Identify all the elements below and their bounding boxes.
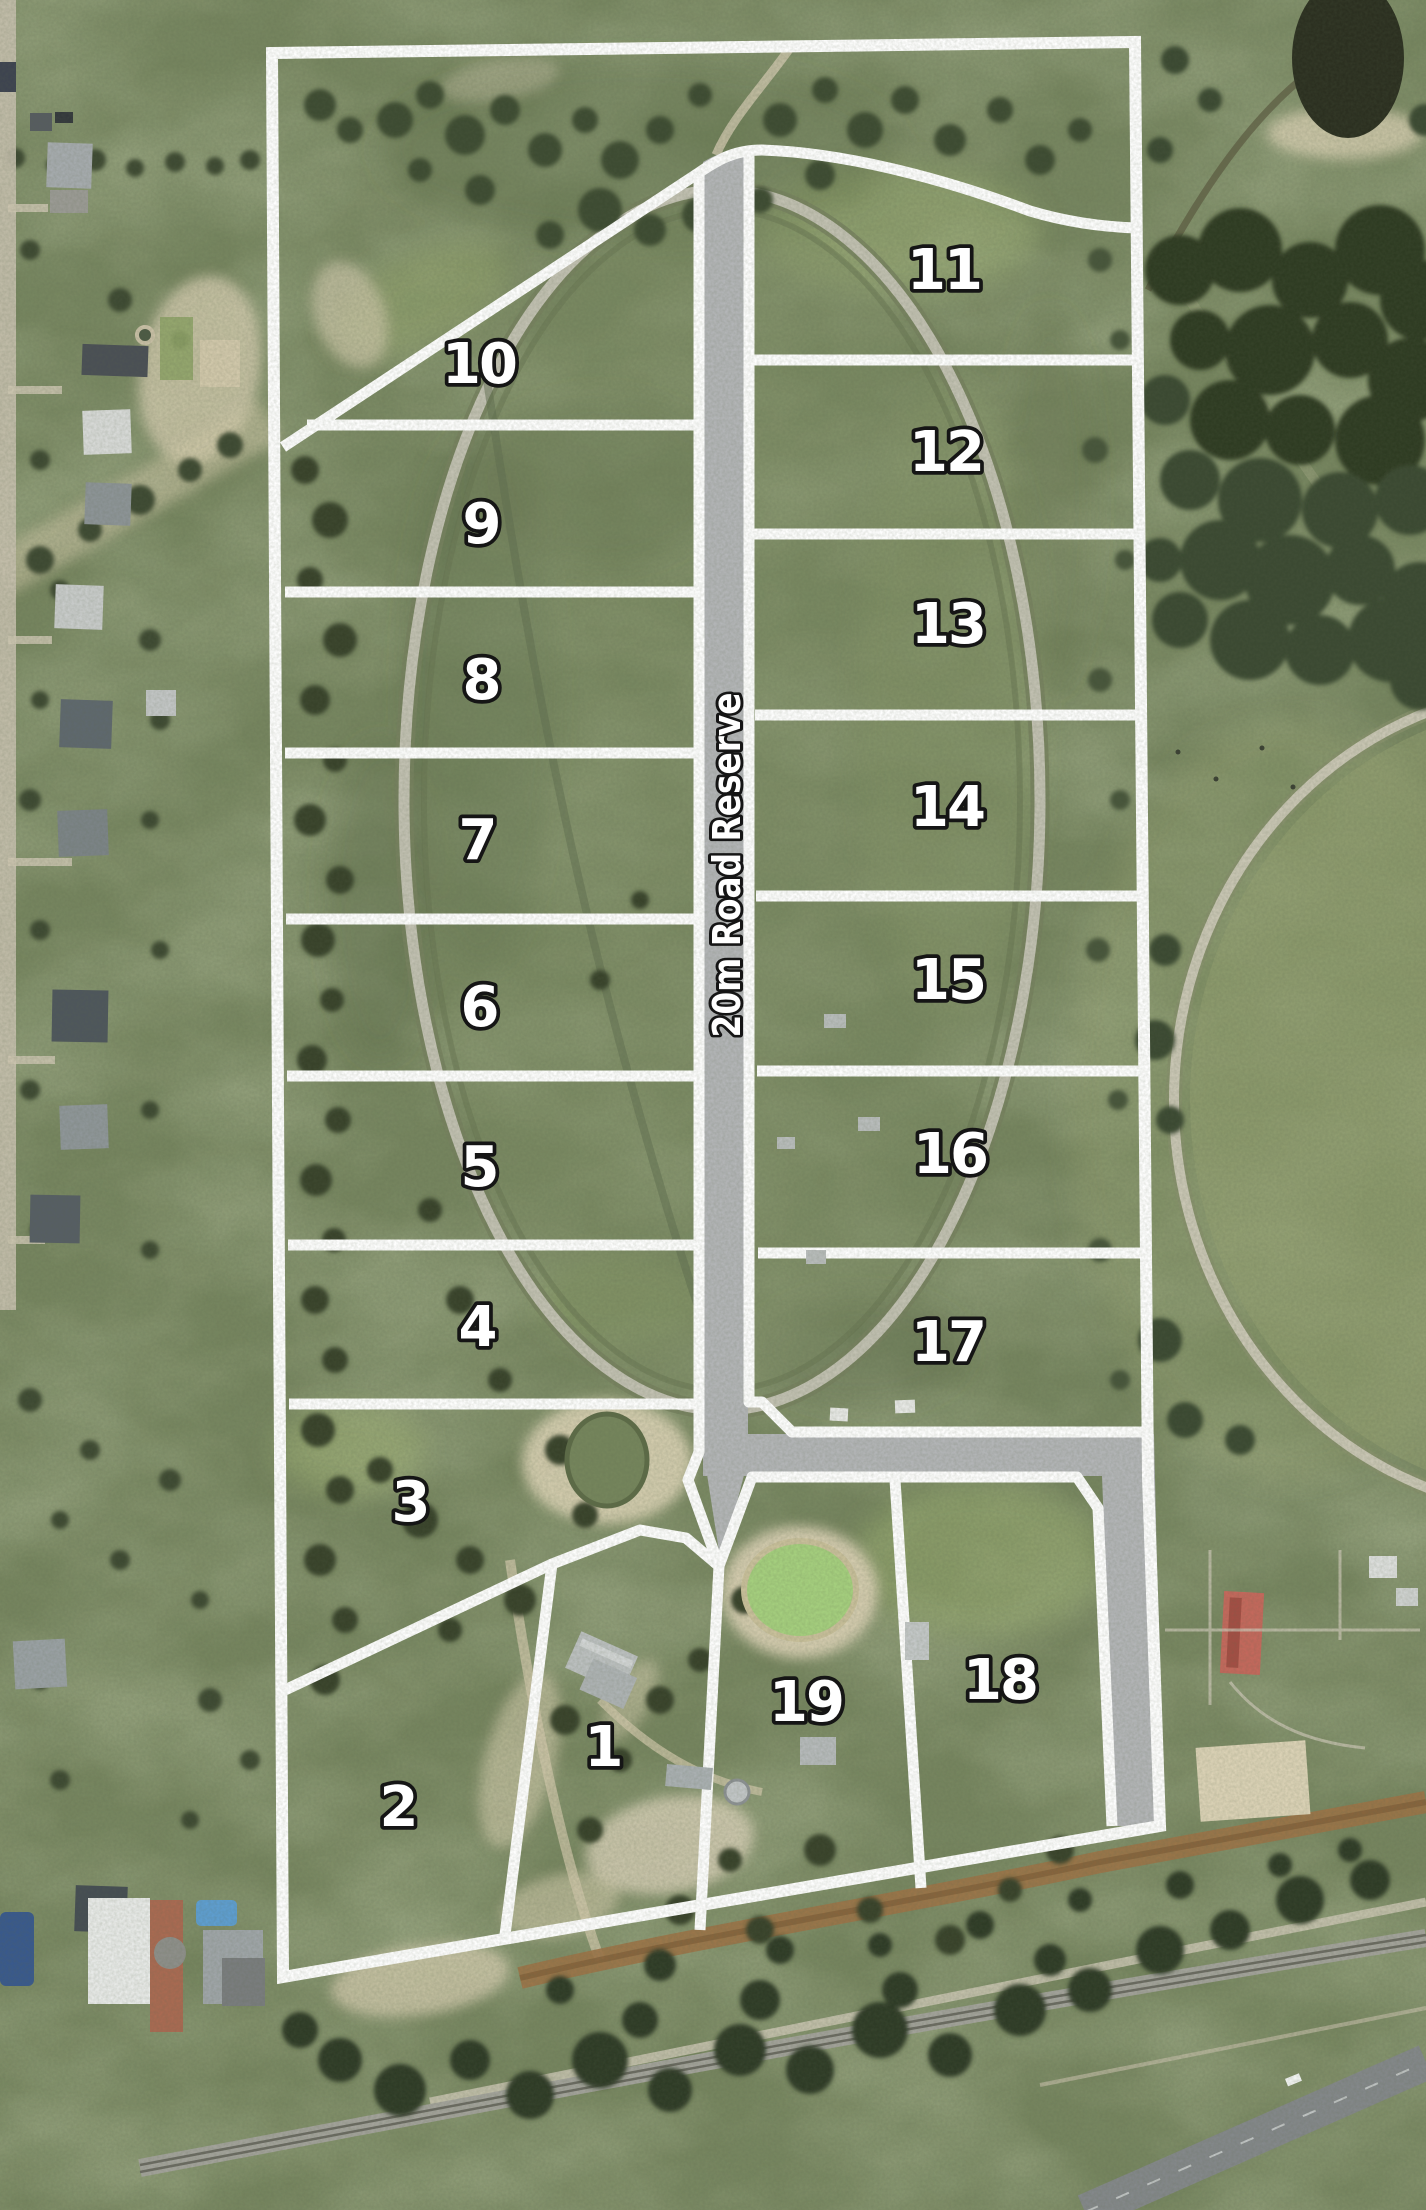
lot-label-15: 15 <box>911 948 985 1013</box>
lot-label-12: 12 <box>909 420 983 485</box>
lot-label-4: 4 <box>459 1295 496 1360</box>
grain-overlay <box>0 0 1426 2210</box>
lot-label-7: 7 <box>459 808 496 873</box>
lot-label-14: 14 <box>910 775 984 840</box>
lot-label-3: 3 <box>392 1470 429 1535</box>
lot-label-18: 18 <box>963 1648 1037 1713</box>
lot-label-10: 10 <box>442 332 516 397</box>
lot-label-16: 16 <box>913 1122 987 1187</box>
subdivision-aerial-map: 12345678910111213141516171819 20m Road R… <box>0 0 1426 2210</box>
road-reserve-label: 20m Road Reserve <box>705 693 749 1038</box>
lot-label-19: 19 <box>769 1670 843 1735</box>
lot-label-13: 13 <box>911 592 985 657</box>
lot-label-1: 1 <box>585 1715 622 1780</box>
lot-label-2: 2 <box>380 1775 417 1840</box>
lot-label-5: 5 <box>461 1135 498 1200</box>
lot-label-8: 8 <box>463 648 500 713</box>
lot-label-6: 6 <box>461 975 498 1040</box>
aerial-map-container: 12345678910111213141516171819 20m Road R… <box>0 0 1426 2210</box>
lot-label-11: 11 <box>907 238 981 303</box>
lot-label-9: 9 <box>463 492 500 557</box>
lot-label-17: 17 <box>911 1310 985 1375</box>
